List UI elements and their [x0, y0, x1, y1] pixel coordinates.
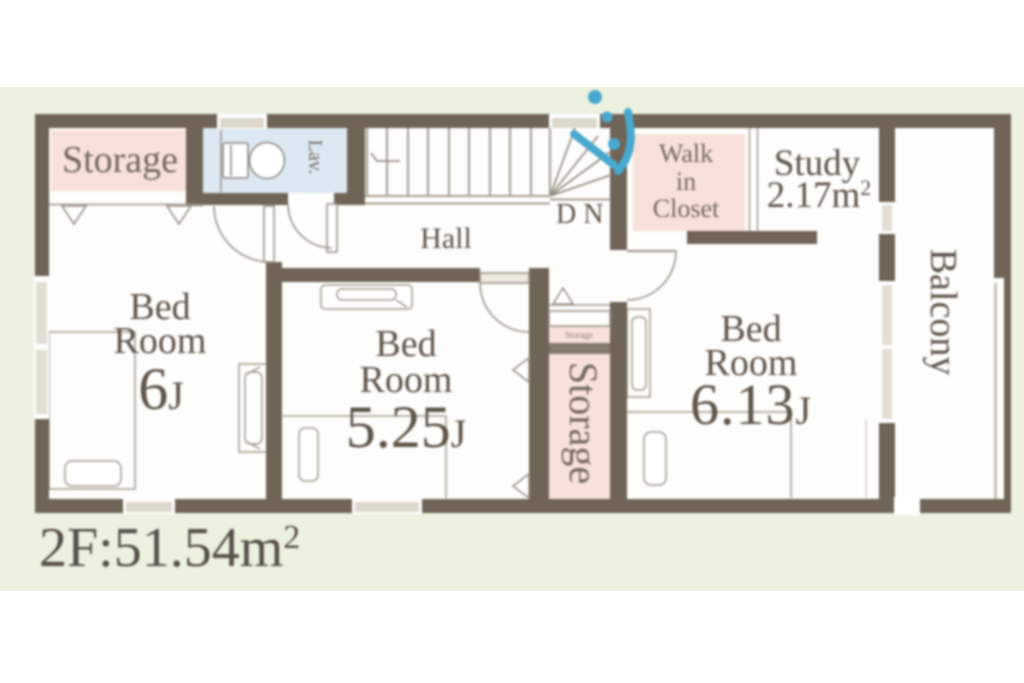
svg-text:Balcony: Balcony [922, 249, 964, 376]
svg-text:Storage: Storage [565, 330, 593, 340]
svg-text:Storage: Storage [62, 139, 178, 181]
svg-text:5.25J: 5.25J [346, 394, 467, 460]
svg-text:2F:51.54m2: 2F:51.54m2 [39, 517, 300, 579]
svg-text:Hall: Hall [420, 222, 472, 255]
svg-text:Walk: Walk [659, 139, 713, 168]
svg-text:in: in [676, 167, 696, 196]
svg-text:Lav.: Lav. [304, 140, 326, 175]
svg-text:2.17m2: 2.17m2 [767, 175, 872, 216]
svg-text:Storage: Storage [561, 362, 606, 484]
svg-text:Closet: Closet [653, 194, 720, 223]
svg-text:DN: DN [556, 199, 610, 230]
svg-text:6.13J: 6.13J [690, 372, 812, 437]
